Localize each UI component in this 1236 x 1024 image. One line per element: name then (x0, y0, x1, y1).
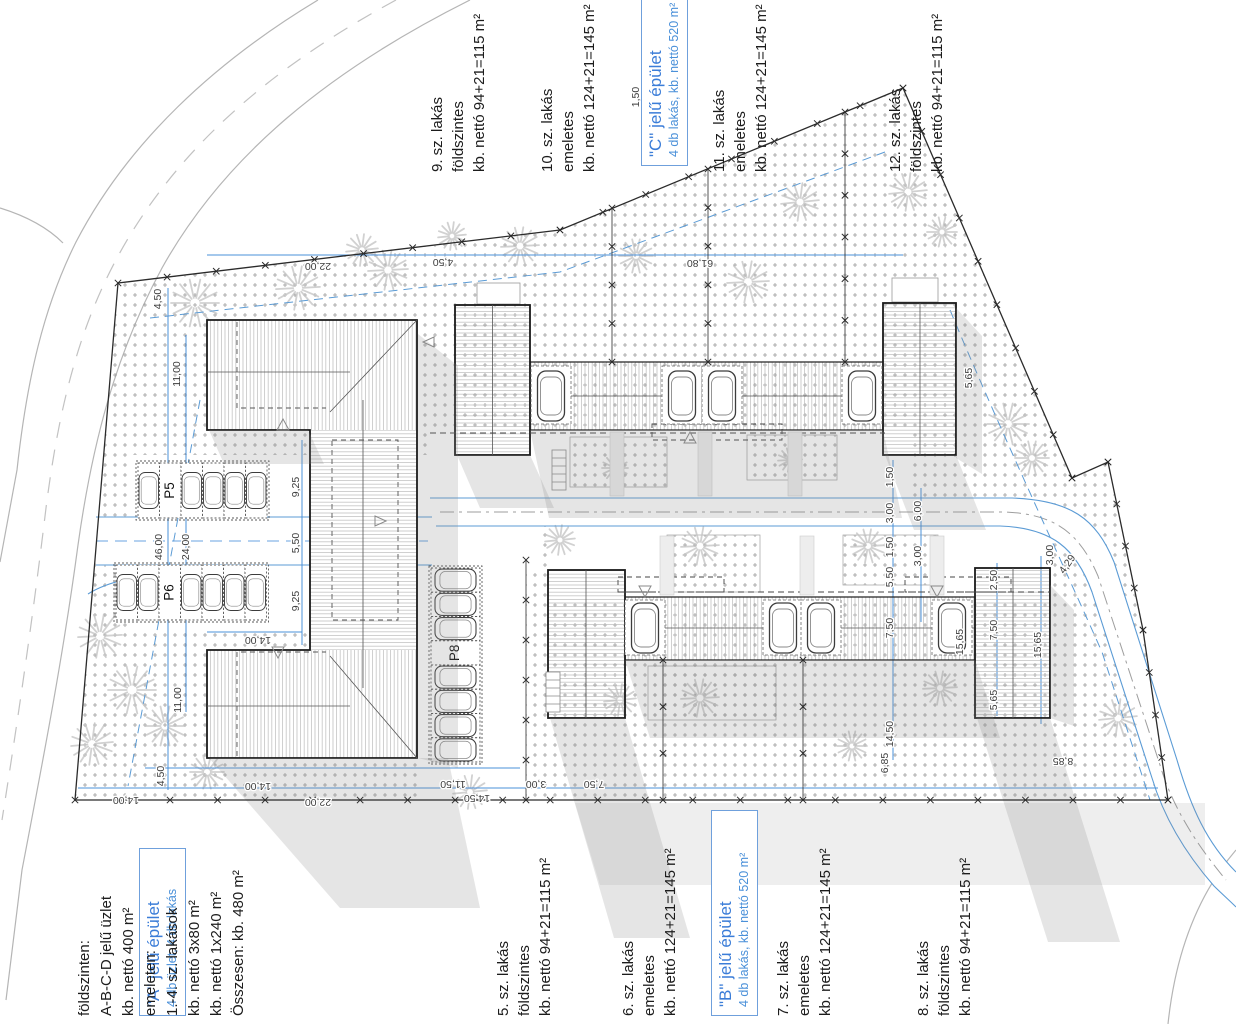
svg-text:4,50: 4,50 (152, 289, 164, 310)
apt6-line3: kb. nettó 124+21=145 m² (660, 848, 681, 1016)
svg-text:5,50: 5,50 (884, 567, 896, 588)
apt10-line1: 10. sz. lakás (537, 4, 558, 172)
svg-text:3,00: 3,00 (884, 503, 896, 524)
svg-text:11,00: 11,00 (171, 361, 183, 387)
svg-text:1,50: 1,50 (884, 467, 896, 488)
svg-text:P6: P6 (161, 584, 176, 601)
site-plan-canvas: P5P6P8 22,004,5061,804,5011,0046,0024,00… (0, 0, 1236, 1024)
svg-text:1,50: 1,50 (884, 537, 896, 558)
svg-text:5,65: 5,65 (988, 690, 1000, 711)
svg-text:4,50: 4,50 (155, 766, 167, 787)
svg-text:7,50: 7,50 (584, 778, 605, 790)
svg-text:11,00: 11,00 (172, 687, 184, 713)
svg-text:14,00: 14,00 (245, 780, 271, 792)
a-detail-3: kb. nettó 400 m² (118, 870, 140, 1016)
a-detail-6: kb. nettó 3x80 m² (184, 870, 206, 1016)
apt8-line1: 8. sz. lakás (913, 858, 934, 1016)
apt12-line1: 12. sz. lakás (885, 14, 906, 172)
building-c-title: "C" jelű épület (645, 0, 666, 157)
svg-text:5,65: 5,65 (963, 368, 975, 389)
svg-text:15,65: 15,65 (1032, 632, 1044, 658)
apt11-line2: emeletes (730, 4, 751, 172)
svg-text:9,25: 9,25 (290, 591, 302, 612)
svg-text:3,00: 3,00 (1044, 545, 1056, 566)
svg-text:7,50: 7,50 (988, 620, 1000, 641)
svg-text:P5: P5 (162, 482, 177, 499)
svg-text:9,25: 9,25 (290, 477, 302, 498)
svg-text:24,00: 24,00 (180, 534, 192, 560)
apt10-line2: emeletes (558, 4, 579, 172)
building-c-subtitle: 4 db lakás, kb. nettó 520 m² (666, 0, 682, 157)
svg-text:6,85: 6,85 (879, 753, 891, 774)
svg-text:61,80: 61,80 (687, 257, 713, 269)
svg-text:14,00: 14,00 (113, 794, 139, 806)
apt5-line3: kb. nettó 94+21=115 m² (535, 858, 556, 1016)
apt5-line1: 5. sz. lakás (493, 858, 514, 1016)
apt7-line2: emeletes (794, 848, 815, 1016)
apt7-line1: 7. sz. lakás (773, 848, 794, 1016)
svg-text:22,00: 22,00 (305, 260, 331, 272)
svg-text:14,50: 14,50 (464, 792, 490, 804)
apt8-line3: kb. nettó 94+21=115 m² (955, 858, 976, 1016)
building-b-title: "B" jelű épület (715, 819, 736, 1007)
a-detail-1: földszinten: (74, 870, 96, 1016)
svg-text:7,50: 7,50 (884, 618, 896, 639)
a-detail-4: emeleten: (140, 870, 162, 1016)
apt8-line2: földszintes (934, 858, 955, 1016)
svg-text:5,50: 5,50 (290, 533, 302, 554)
apt6-line1: 6. sz. lakás (618, 848, 639, 1016)
apt12-line2: földszintes (906, 14, 927, 172)
a-detail-2: A-B-C-D jelű üzlet (96, 870, 118, 1016)
a-detail-8: Összesen: kb. 480 m² (228, 870, 250, 1016)
apt9-line1: 9. sz. lakás (427, 14, 448, 172)
svg-text:3,00: 3,00 (526, 778, 547, 790)
a-detail-7: kb. nettó 1x240 m² (206, 870, 228, 1016)
apt9-line3: kb. nettó 94+21=115 m² (469, 14, 490, 172)
svg-text:4,50: 4,50 (433, 256, 454, 268)
apt5-line2: földszintes (514, 858, 535, 1016)
apt12-line3: kb. nettó 94+21=115 m² (927, 14, 948, 172)
svg-text:2,50: 2,50 (988, 570, 1000, 591)
svg-text:3,00: 3,00 (912, 546, 924, 567)
apt6-line2: emeletes (639, 848, 660, 1016)
apt9-line2: földszintes (448, 14, 469, 172)
apt7-line3: kb. nettó 124+21=145 m² (815, 848, 836, 1016)
svg-text:11,50: 11,50 (440, 778, 466, 790)
svg-text:15,65: 15,65 (954, 629, 966, 655)
svg-text:46,00: 46,00 (153, 534, 165, 560)
apt10-line3: kb. nettó 124+21=145 m² (579, 4, 600, 172)
apt11-line3: kb. nettó 124+21=145 m² (751, 4, 772, 172)
building-b-subtitle: 4 db lakás, kb. nettó 520 m² (736, 819, 752, 1007)
svg-text:14,50: 14,50 (884, 721, 896, 747)
svg-text:22,00: 22,00 (305, 796, 331, 808)
a-detail-5: 1.-4. sz. lakások (162, 870, 184, 1016)
svg-text:14,00: 14,00 (245, 634, 271, 646)
svg-text:8,85: 8,85 (1053, 755, 1074, 767)
svg-text:6,00: 6,00 (912, 501, 924, 522)
apt11-line1: 11. sz. lakás (709, 4, 730, 172)
